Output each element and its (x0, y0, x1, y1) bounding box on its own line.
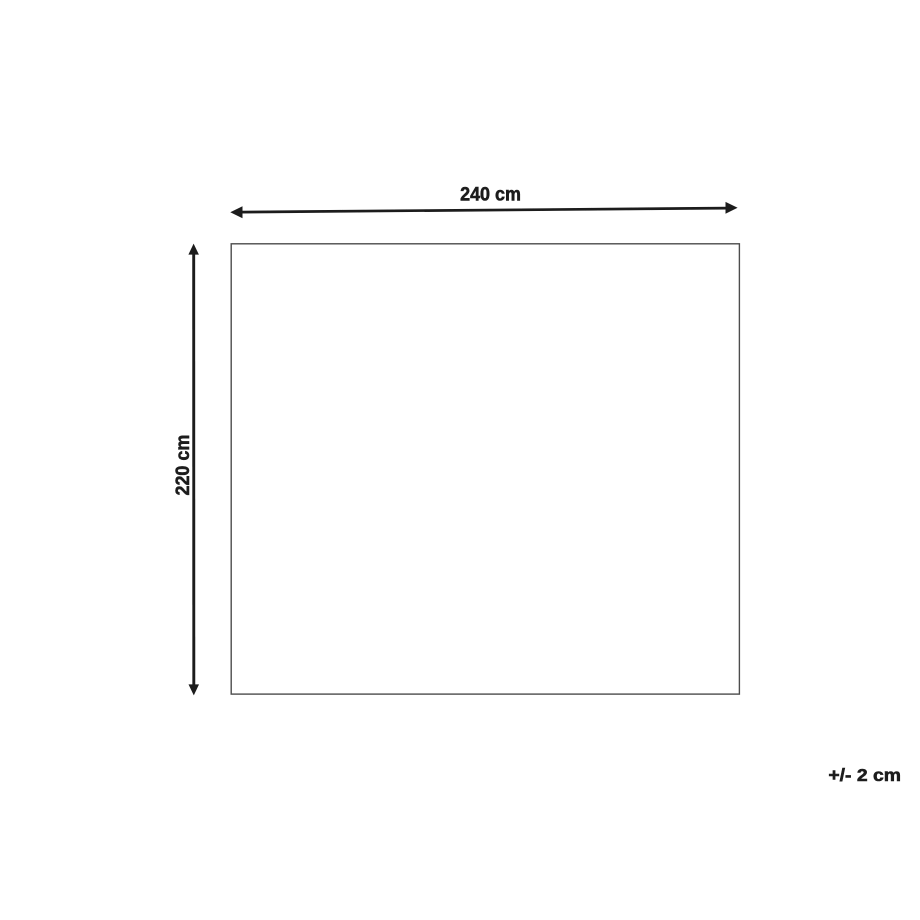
svg-text:240 cm: 240 cm (460, 183, 521, 205)
svg-text:220 cm: 220 cm (172, 435, 194, 496)
svg-text:+/- 2 cm: +/- 2 cm (828, 765, 901, 785)
